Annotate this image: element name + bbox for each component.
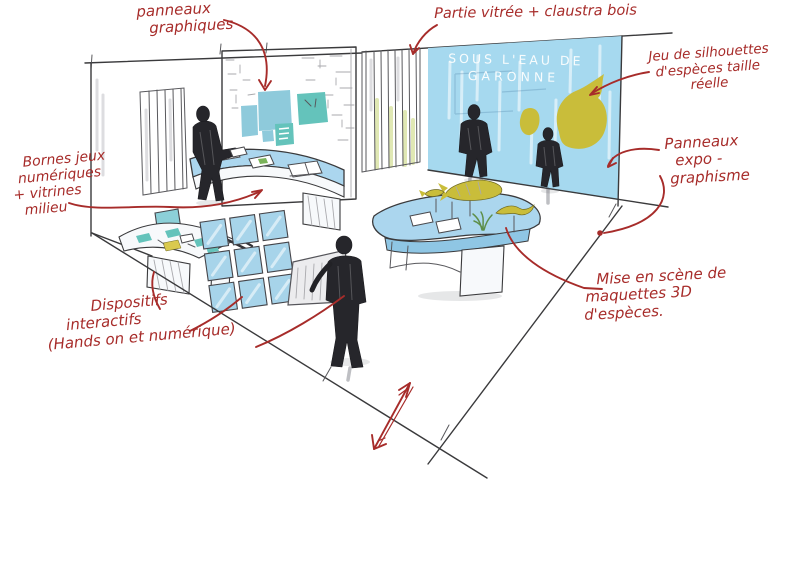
annotation-mise-en-scene: Mise en scène de maquettes 3D d'espèces. (582, 264, 728, 323)
annotation-jeu-silhouettes: Jeu de silhouettes d'espèces taille réel… (648, 42, 771, 97)
graphic-panels-notes (241, 90, 328, 146)
visitor-head (197, 106, 210, 122)
maquette-table (373, 180, 541, 301)
visitor-head (468, 105, 480, 120)
visitor-with-panel (288, 236, 370, 380)
visitor-head (543, 128, 553, 141)
annotation-bornes-jeux: Bornes jeux numériques + vitrines milieu (8, 148, 110, 221)
visitor-at-counter (193, 106, 247, 206)
annotation-panneaux-expo: Panneaux expo - graphisme (664, 132, 750, 188)
circulation-arrow (372, 383, 413, 449)
annotation-partie-vitree: Partie vitrée + claustra bois (434, 2, 637, 22)
wall-title: SOUS L'EAU DE GARONNE (448, 51, 584, 86)
annotation-line: Partie vitrée + claustra bois (434, 2, 637, 22)
visitor-head (336, 236, 352, 254)
hanging-slat-panel (140, 88, 187, 195)
wall-fish-dot (589, 136, 596, 143)
red-dot (597, 230, 603, 236)
wall-title-line: SOUS L'EAU DE (448, 51, 584, 69)
wall-title-line: GARONNE (468, 68, 584, 85)
exhibition-sketch: SOUS L'EAU DE GARONNE panneaux graphique… (0, 0, 800, 566)
annotation-panneaux-graphiques: panneaux graphiques (132, 0, 234, 38)
